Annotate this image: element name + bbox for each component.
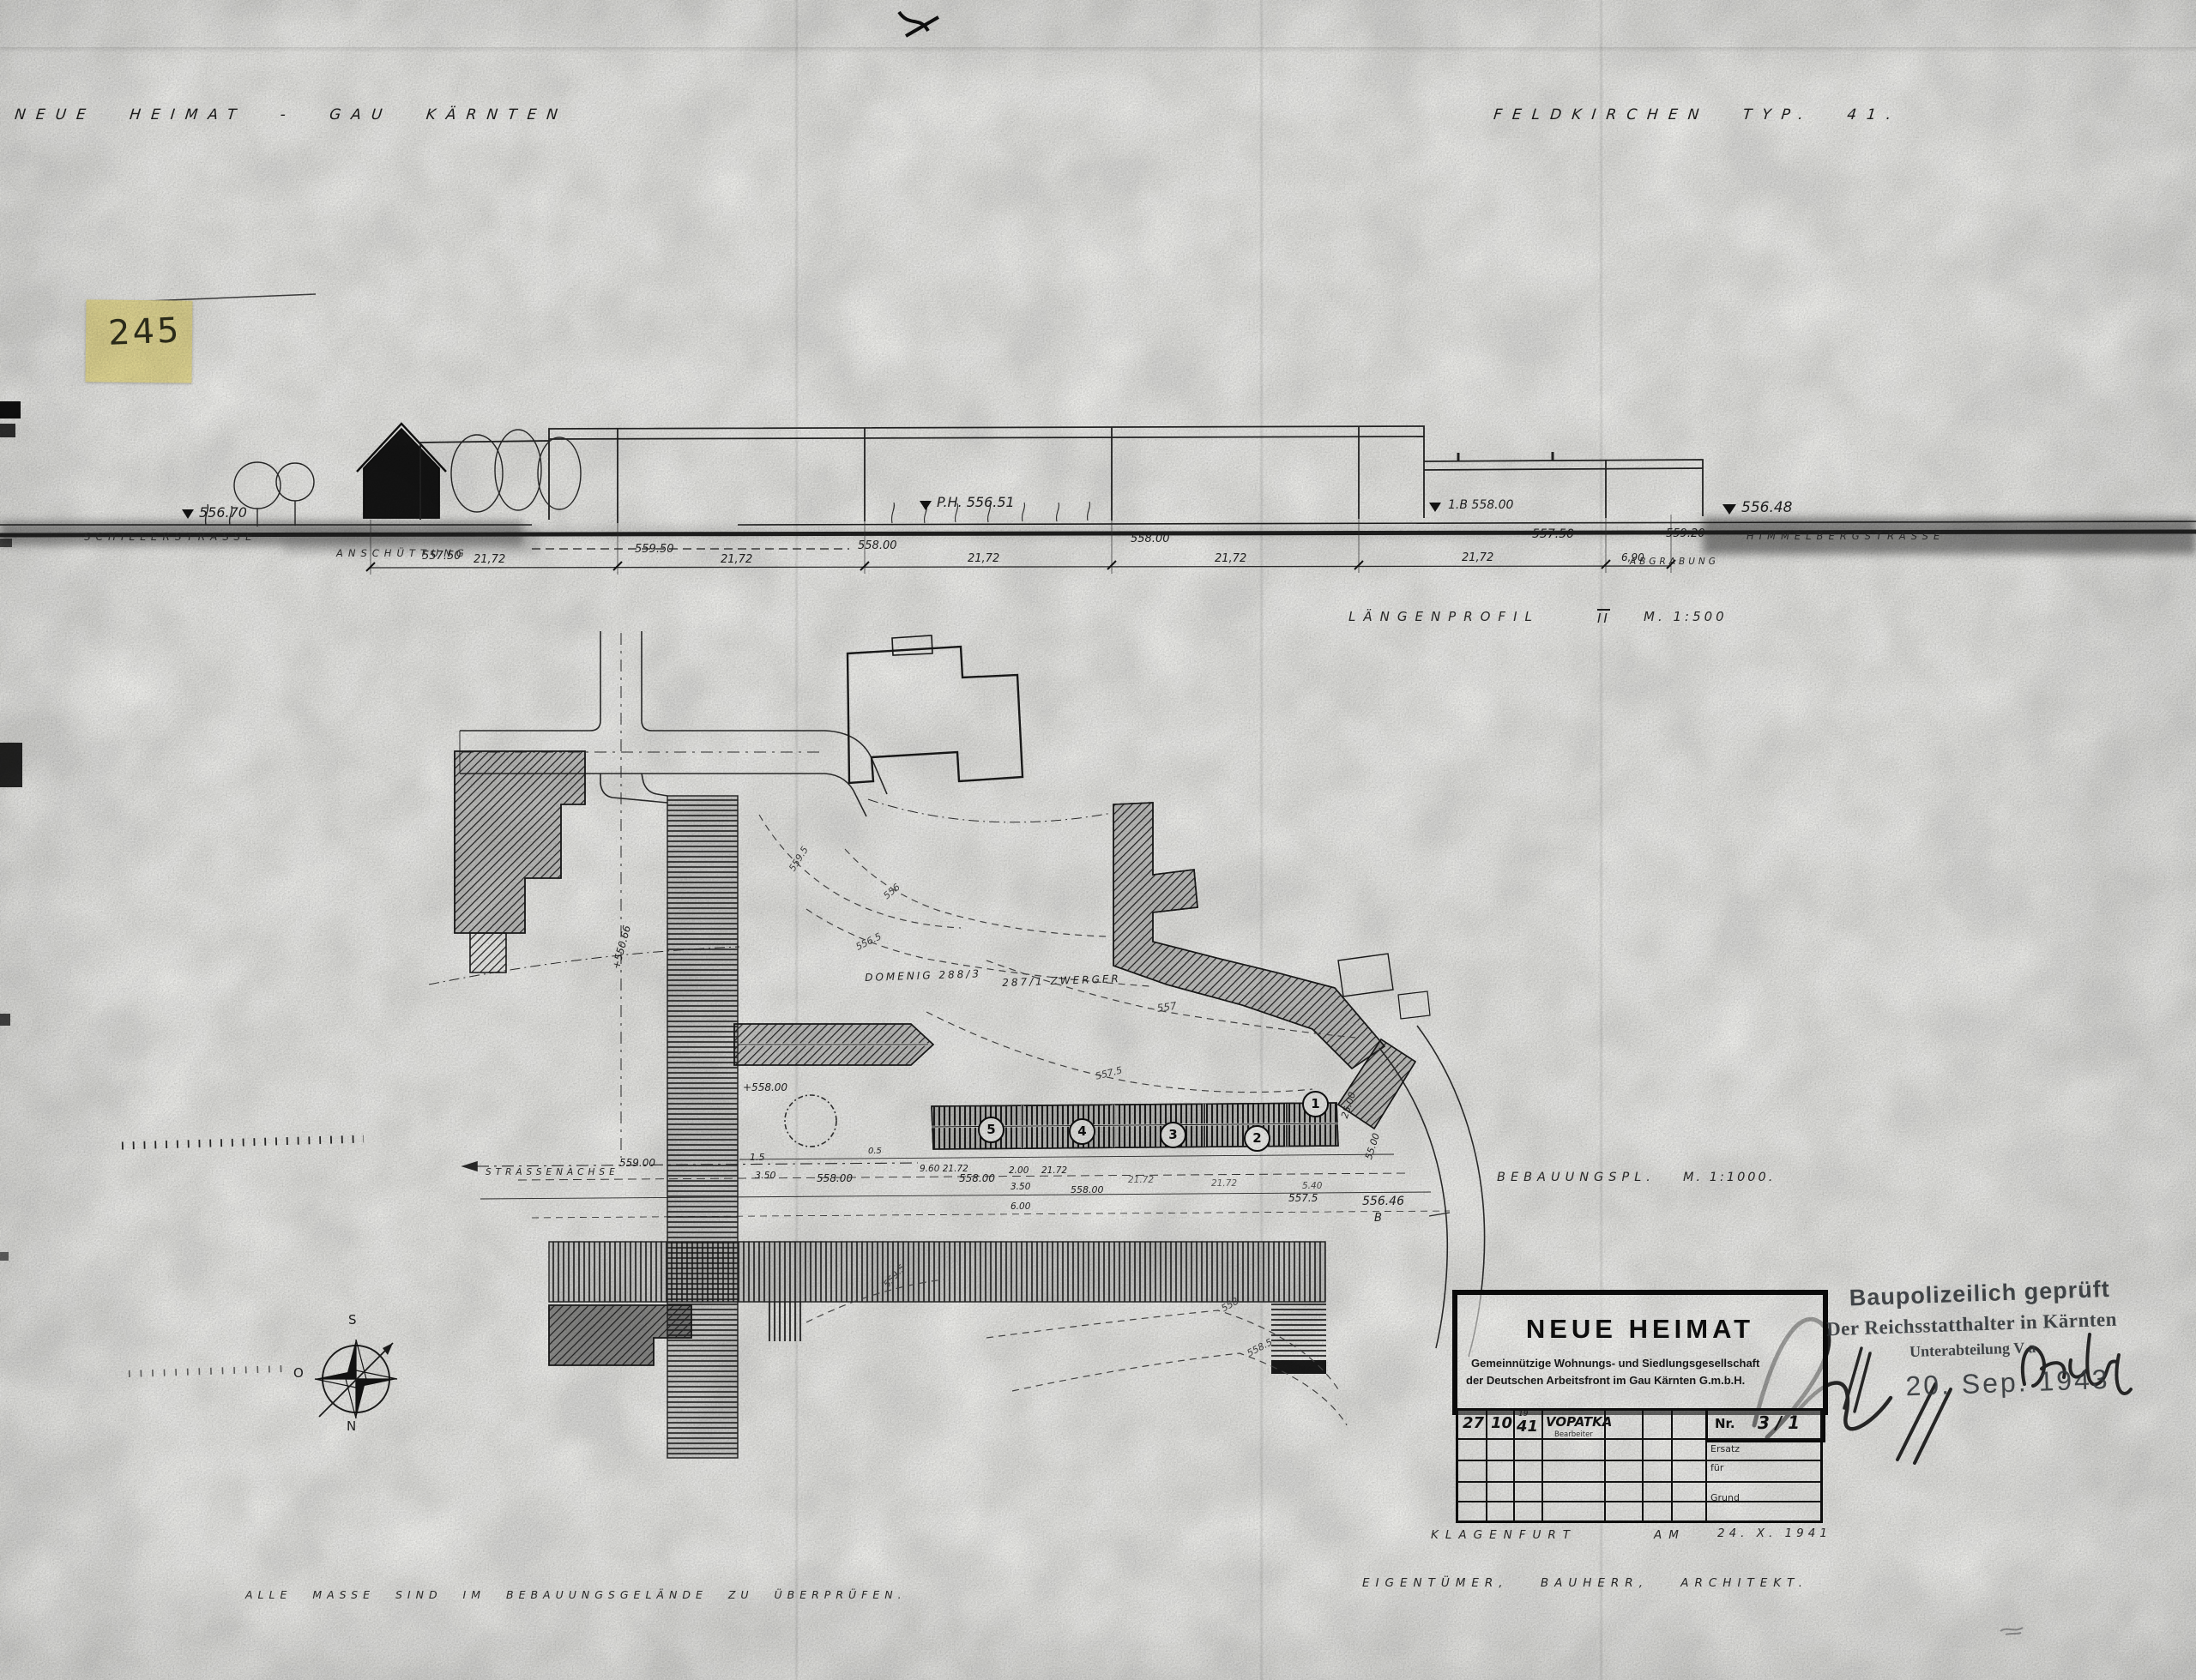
- scanned-site-plan-sheet: NEUE HEIMAT - GAU KÄRNTEN FELDKIRCHEN TY…: [0, 0, 2196, 1680]
- title-block: NEUE HEIMAT Gemeinnützige Wohnungs- und …: [1452, 1290, 1828, 1415]
- sticky-note-number: 245: [107, 310, 182, 353]
- side-label-grund: Grund: [1710, 1492, 1740, 1503]
- elevation-label: 559.50: [635, 544, 674, 555]
- building-unit-number: 3: [1160, 1122, 1186, 1148]
- profile-trees: [206, 430, 1090, 527]
- elevation-label-ph: P.H. 556.51: [937, 496, 1015, 509]
- scan-edge-mark: [0, 743, 22, 787]
- offset-dim: 3.50: [1011, 1183, 1030, 1192]
- footer-am: AM: [1654, 1530, 1686, 1542]
- plan-dim: 21.72: [1128, 1176, 1154, 1185]
- profile-dim: 21,72: [1462, 552, 1493, 563]
- footer-place: KLAGENFURT: [1431, 1530, 1577, 1542]
- side-label-fuer: für: [1710, 1462, 1723, 1473]
- compass-letter-n: N: [347, 1420, 356, 1433]
- profile-title: LÄNGENPROFIL: [1348, 611, 1540, 623]
- elevation-label: 557.50: [422, 551, 462, 562]
- offset-dim: 3.50: [755, 1171, 776, 1180]
- elevation-label: 559.20: [1666, 528, 1705, 539]
- compass-rose: [315, 1340, 397, 1418]
- ink-mark: [899, 12, 938, 36]
- profile-dim: 21,72: [474, 554, 505, 565]
- date-day: 27: [1463, 1414, 1484, 1432]
- elevation-label: 558.00: [858, 540, 897, 551]
- drafter-role: Bearbeiter: [1554, 1430, 1593, 1439]
- elevation-label-1b: 1.B 558.00: [1448, 499, 1513, 511]
- plan-dim: 2.00: [1009, 1166, 1029, 1176]
- spot-height: +558.00: [743, 1082, 787, 1093]
- company-subline-1: Gemeinnützige Wohnungs- und Siedlungsges…: [1471, 1357, 1759, 1370]
- plan-title-scale: M. 1:1000.: [1683, 1171, 1775, 1184]
- elevation-label: 557.50: [1532, 528, 1574, 540]
- scan-edge-mark: [0, 401, 21, 418]
- stamp-line-3: Unterabteilung V a: [1909, 1339, 2036, 1361]
- compass-letter-s: S: [348, 1314, 357, 1327]
- stamp-line-1: Baupolizeilich geprüft: [1849, 1276, 2110, 1312]
- company-name: NEUE HEIMAT: [1457, 1314, 1823, 1345]
- spot-height: 557.5: [1288, 1193, 1318, 1203]
- company-subline-2: der Deutschen Arbeitsfront im Gau Kärnte…: [1466, 1374, 1745, 1387]
- offset-dim: 0.5: [868, 1147, 882, 1156]
- elevation-label: 556.48: [1741, 501, 1792, 515]
- profile-dim: 21,72: [721, 554, 752, 565]
- plan-dim: 9.60 21.72: [920, 1165, 968, 1174]
- profile-title-roman: II: [1597, 609, 1610, 625]
- profile-dim: 6,90: [1621, 552, 1644, 563]
- elevation-label: 556.70: [199, 506, 247, 520]
- street-axis-label: STRASSENACHSE: [486, 1168, 619, 1177]
- nr-value: 3 / 1: [1758, 1412, 1800, 1433]
- street-name-himmelbergstrasse: HIMMELBERGSTRASSE: [1747, 532, 1945, 542]
- profile-dim: 21,72: [1215, 553, 1246, 564]
- sheet-title-right: FELDKIRCHEN TYP. 41.: [1493, 108, 1902, 123]
- building-unit-number: 5: [978, 1117, 1004, 1143]
- offset-dim: 6.00: [1011, 1202, 1030, 1212]
- point-b-label: B: [1374, 1213, 1382, 1224]
- spot-height: 558.00: [959, 1173, 995, 1183]
- sheet-title-left: NEUE HEIMAT - GAU KÄRNTEN: [14, 108, 569, 123]
- footer-roles: EIGENTÜMER, BAUHERR, ARCHITEKT.: [1362, 1578, 1808, 1590]
- plan-title: BEBAUUNGSPL.: [1497, 1171, 1656, 1184]
- approval-stamp: Baupolizeilich geprüft Der Reichsstattha…: [1823, 1262, 2196, 1437]
- plan-dim: 5.40: [1302, 1182, 1322, 1191]
- spot-height: 556.46: [1362, 1195, 1404, 1207]
- scan-edge-mark: [0, 424, 15, 437]
- drafter-name: VOPATKA: [1546, 1414, 1612, 1430]
- compass-letter-o: O: [293, 1367, 304, 1380]
- building-unit-number: 4: [1069, 1118, 1095, 1145]
- elevation-label: 558.00: [1131, 533, 1170, 545]
- footer-date: 24. X. 1941: [1717, 1528, 1831, 1540]
- faint-mark: [2000, 1628, 2023, 1635]
- spot-height: 558.00: [1071, 1185, 1104, 1195]
- date-month: 10: [1491, 1414, 1512, 1432]
- spot-height: 559.00: [619, 1158, 655, 1168]
- tree-symbol: [785, 1095, 836, 1147]
- spot-height: 558.00: [817, 1173, 853, 1183]
- street-name-schillerstrasse: SCHILLERSTRASSE: [84, 532, 257, 542]
- bottom-note: ALLE MASSE SIND IM BEBAUUNGSGELÄNDE ZU Ü…: [245, 1590, 907, 1601]
- profile-title-scale: M. 1:500: [1644, 611, 1728, 623]
- stamp-date: 20. Sep. 1943: [1905, 1364, 2110, 1402]
- plan-dim: 21.72: [1041, 1166, 1067, 1176]
- title-block-table: 27 10 19 41 VOPATKA Bearbeiter Nr. 3 / 1…: [1456, 1408, 1823, 1523]
- drawing-number-box: Nr. 3 / 1: [1705, 1408, 1825, 1442]
- plan-dim: 21.72: [1211, 1179, 1237, 1189]
- contour-label: 557: [1156, 1001, 1177, 1014]
- sticky-note: 245: [86, 299, 193, 382]
- offset-dim: 1.5: [750, 1153, 765, 1162]
- building-unit-number: 2: [1244, 1125, 1270, 1152]
- side-label-ersatz: Ersatz: [1710, 1443, 1740, 1454]
- scan-edge-mark: [0, 539, 12, 547]
- building-unit-number: 1: [1302, 1091, 1329, 1117]
- scan-edge-mark: [0, 1252, 9, 1261]
- date-year: 41: [1517, 1418, 1538, 1436]
- scan-edge-mark: [0, 1014, 10, 1026]
- stamp-line-2: Der Reichsstatthalter in Kärnten: [1826, 1309, 2118, 1341]
- profile-dim: 21,72: [968, 553, 999, 564]
- nr-label: Nr.: [1715, 1416, 1735, 1431]
